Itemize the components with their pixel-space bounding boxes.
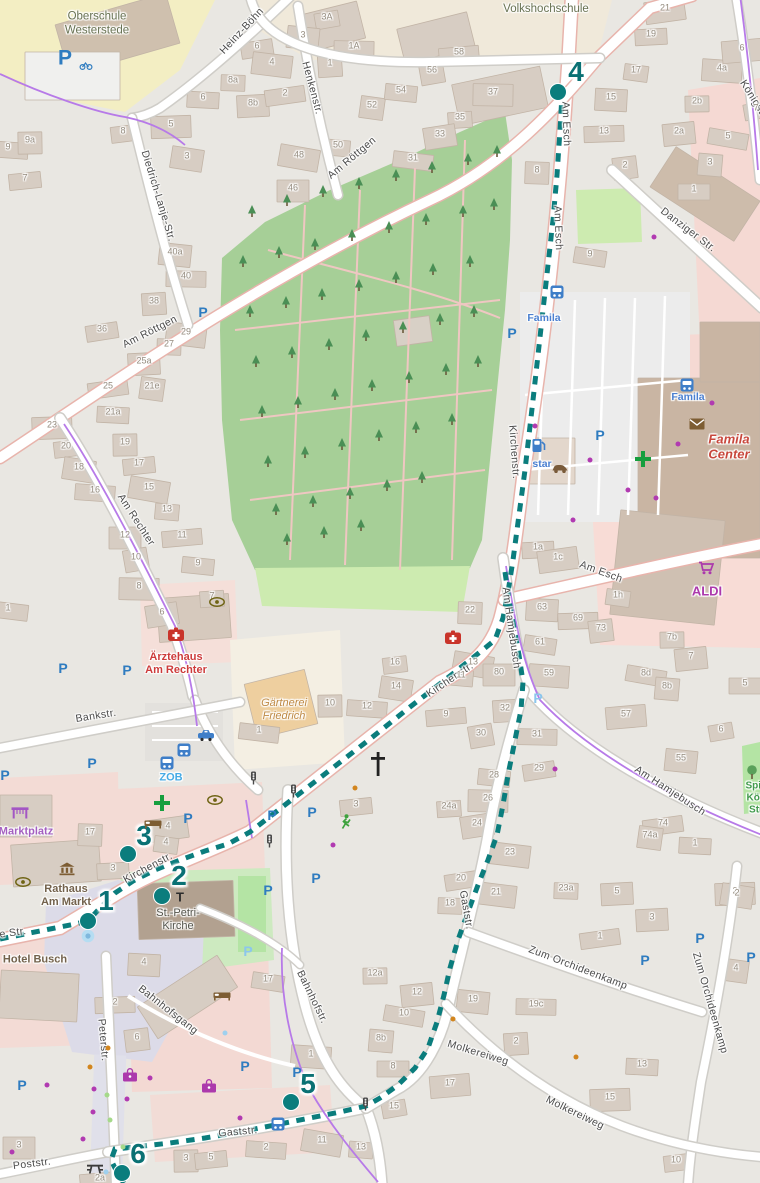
route-stop-dot-2 — [154, 888, 171, 905]
route-stop-dot-4 — [550, 84, 567, 101]
map-canvas[interactable]: 123456Heinz-BöhnHenkenstr.Diedrich-Lanje… — [0, 0, 760, 1183]
route-stop-dot-1 — [80, 913, 97, 930]
route-stop-dot-5 — [283, 1094, 300, 1111]
route-stop-dot-6 — [114, 1165, 131, 1182]
map-base-layer — [0, 0, 760, 1183]
route-stop-dot-3 — [120, 846, 137, 863]
conifer-tree-icon — [248, 205, 256, 217]
